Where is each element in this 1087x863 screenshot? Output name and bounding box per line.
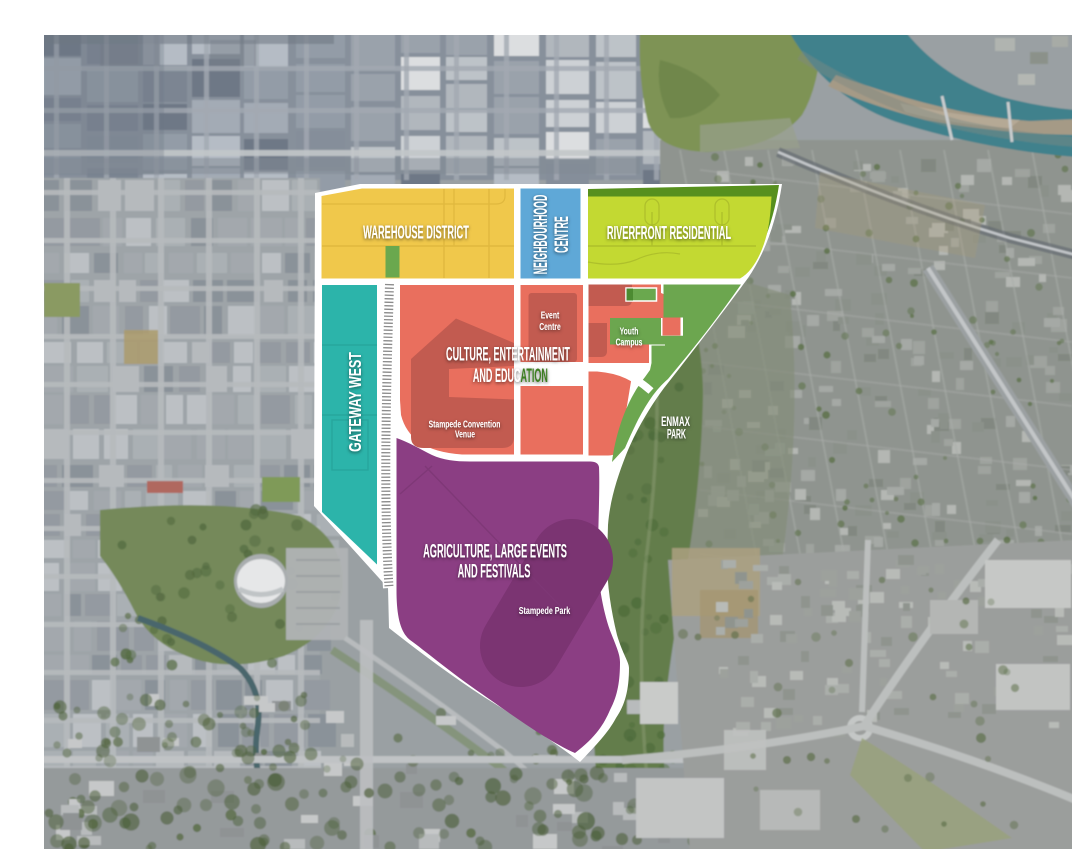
svg-text:CENTRE: CENTRE [553,216,573,253]
svg-text:AND FESTIVALS: AND FESTIVALS [458,561,531,583]
svg-text:Campus: Campus [616,336,643,348]
svg-text:AGRICULTURE, LARGE EVENTS: AGRICULTURE, LARGE EVENTS [423,541,567,563]
svg-text:Venue: Venue [455,428,475,440]
svg-text:NEIGHBOURHOOD: NEIGHBOURHOOD [532,195,553,275]
svg-text:Centre: Centre [539,321,561,333]
svg-text:Youth: Youth [620,325,639,337]
svg-text:Event: Event [541,309,560,321]
svg-text:Stampede Park: Stampede Park [519,605,571,617]
svg-text:GATEWAY WEST: GATEWAY WEST [346,352,366,452]
svg-text:ATION: ATION [521,367,548,387]
svg-text:WAREHOUSE DISTRICT: WAREHOUSE DISTRICT [363,223,469,243]
svg-text:CULTURE, ENTERTAINMENT: CULTURE, ENTERTAINMENT [446,345,570,365]
svg-text:PARK: PARK [667,427,686,442]
svg-text:RIVERFRONT RESIDENTIAL: RIVERFRONT RESIDENTIAL [607,224,731,244]
svg-text:AND EDUC: AND EDUC [473,367,521,387]
